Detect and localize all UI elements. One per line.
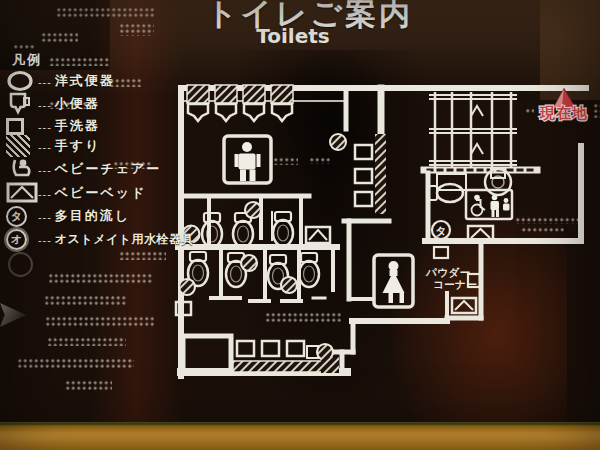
- stairs: [429, 92, 517, 167]
- womens-room: [176, 252, 413, 373]
- legend-item-ostomate: オ --- オストメイト用水栓器具: [6, 226, 194, 252]
- male-pictogram: [235, 142, 261, 181]
- female-pictogram: [383, 261, 405, 303]
- washbasin-icon: [237, 341, 254, 356]
- multipurpose-sink-icon: タ: [432, 221, 450, 239]
- current-location-label: 現在地: [539, 104, 588, 122]
- female-symbol-sign: [374, 255, 413, 307]
- toilet-icon: [299, 253, 319, 287]
- stair-arrow: [471, 144, 483, 154]
- wheelchair-icon: [472, 195, 486, 216]
- ostomate-icon: オ: [6, 229, 38, 250]
- legend-item-baby-chair: --- ベビーチェアー: [6, 156, 161, 182]
- handrail-hatch: [321, 357, 339, 373]
- stair-arrow: [471, 106, 483, 116]
- washbasin-icon: [262, 341, 279, 356]
- toilet-icon: [202, 213, 222, 247]
- legend-heading: 凡例: [12, 51, 42, 69]
- powder-corner: パウダー コーナー: [425, 247, 480, 313]
- washbasin-icon: [434, 247, 448, 258]
- fixture-circle-icon: [245, 202, 261, 218]
- handrail-icon: [6, 135, 38, 157]
- adult-icon: [491, 195, 500, 217]
- male-symbol-sign: [224, 136, 271, 183]
- handrail-hatch: [233, 361, 333, 372]
- wood-frame: [0, 422, 600, 450]
- western-toilet-icon: [6, 69, 38, 93]
- sign-title-english: Toilets: [228, 24, 358, 48]
- mens-stalls: [183, 202, 331, 247]
- multipurpose-sink-icon: タ: [6, 206, 38, 227]
- powder-corner-label: コーナー: [433, 278, 478, 290]
- baby-bed-icon: [306, 227, 330, 243]
- fixture-circle-icon: [330, 134, 346, 150]
- washbasin-icon: [287, 341, 304, 356]
- washbasin-icon: [355, 145, 372, 206]
- fixture-circle-icon: [241, 255, 257, 271]
- urinal-icon: [188, 104, 292, 121]
- toilet-icon: [273, 212, 293, 246]
- fixture-circle-icon: [179, 279, 195, 295]
- baby-bed-icon: [6, 181, 38, 205]
- floorplan-walls: [178, 88, 586, 376]
- baby-icon: [503, 198, 510, 210]
- svg-text:タ: タ: [435, 225, 446, 238]
- current-location-marker: 現在地: [539, 89, 588, 123]
- washbasin-icon: [6, 118, 38, 135]
- legend-faint-circle: [8, 252, 33, 277]
- toilet-icon: [429, 184, 463, 202]
- accessible-toilet-room: タ: [429, 169, 512, 241]
- baby-bed-icon: [452, 298, 476, 313]
- handrail-hatch: [375, 134, 386, 214]
- fixture-circle-icon: [281, 277, 297, 293]
- baby-chair-icon: [6, 156, 38, 182]
- toilet-guide-sign-photo: トイレご案内 Toilets 凡例 --- 洋式便器 --- 小便器 --- 手…: [0, 0, 600, 450]
